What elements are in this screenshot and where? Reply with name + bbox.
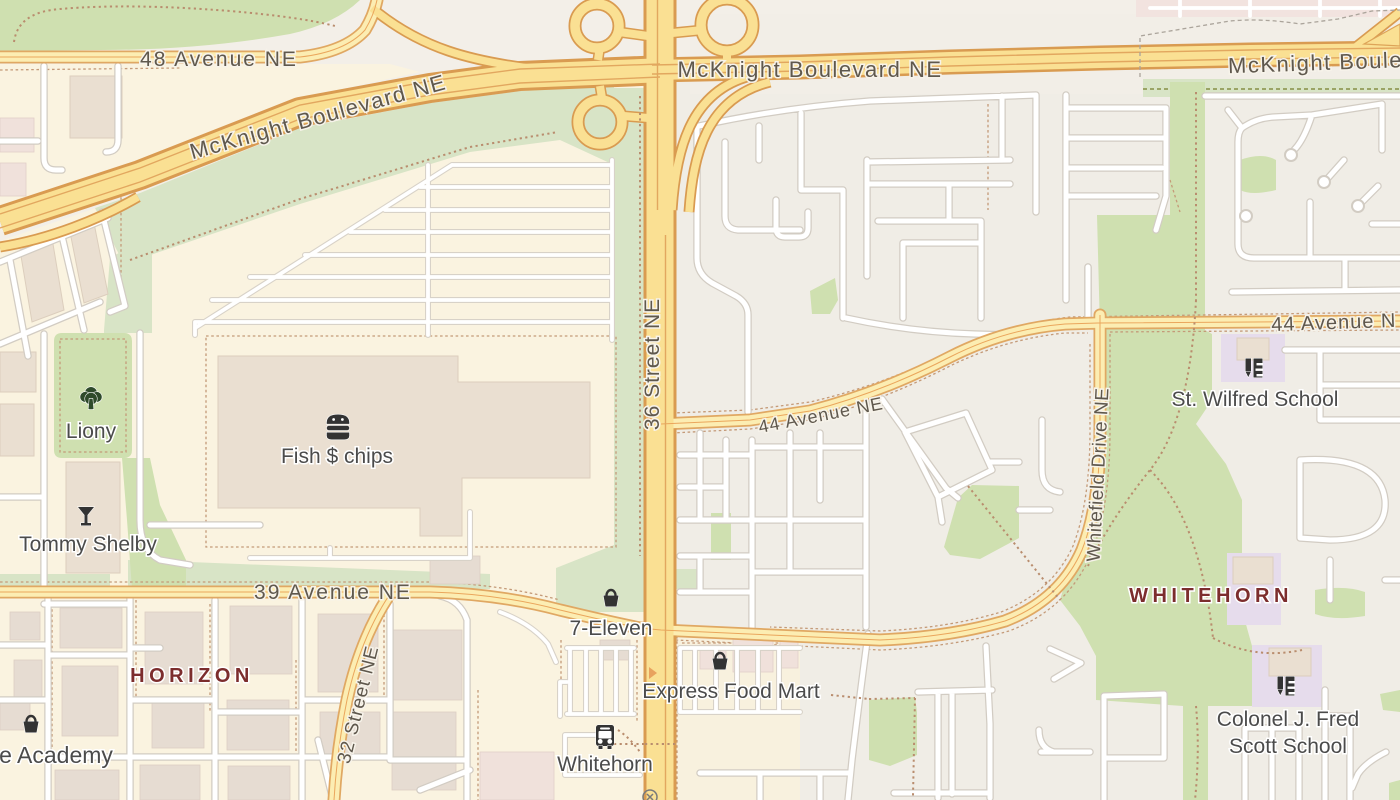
svg-text:Express Food Mart: Express Food Mart xyxy=(642,680,820,703)
svg-text:WHITEHORN: WHITEHORN xyxy=(1129,585,1293,607)
svg-text:Liony: Liony xyxy=(66,420,117,443)
svg-text:Whitehorn: Whitehorn xyxy=(557,753,653,776)
svg-text:e Academy: e Academy xyxy=(0,742,113,768)
svg-text:44 Avenue N: 44 Avenue N xyxy=(1271,310,1397,336)
svg-text:Tommy Shelby: Tommy Shelby xyxy=(19,533,157,556)
svg-text:Scott School: Scott School xyxy=(1229,735,1347,758)
svg-text:39 Avenue NE: 39 Avenue NE xyxy=(254,581,412,604)
svg-text:Fish $ chips: Fish $ chips xyxy=(281,445,393,468)
svg-text:Colonel J. Fred: Colonel J. Fred xyxy=(1217,708,1359,731)
svg-text:HORIZON: HORIZON xyxy=(130,665,254,687)
svg-text:St. Wilfred School: St. Wilfred School xyxy=(1172,388,1339,411)
svg-text:48 Avenue NE: 48 Avenue NE xyxy=(140,48,298,71)
svg-text:7-Eleven: 7-Eleven xyxy=(570,617,653,640)
svg-text:36 Street NE: 36 Street NE xyxy=(641,298,664,430)
svg-text:McKnight Boulevard NE: McKnight Boulevard NE xyxy=(677,57,942,82)
